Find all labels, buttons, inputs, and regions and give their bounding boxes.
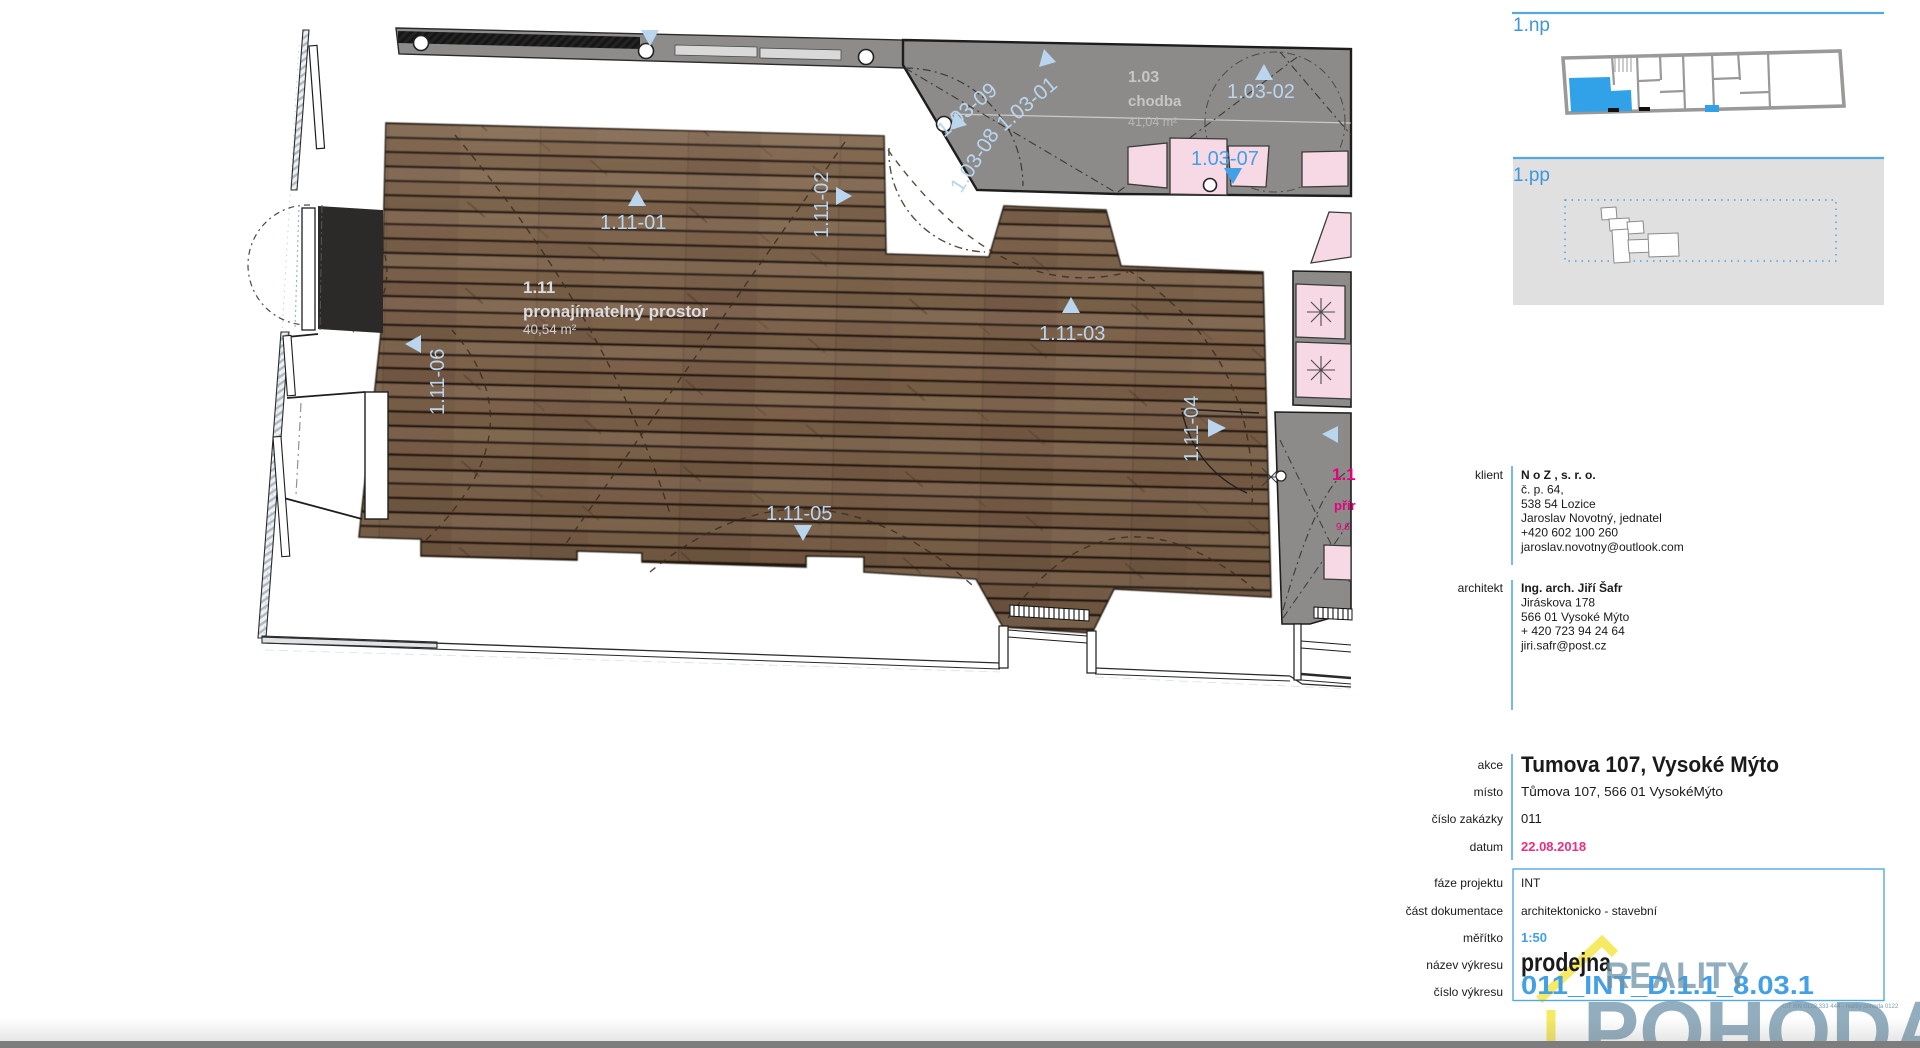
svg-text:566 01 Vysoké Mýto: 566 01 Vysoké Mýto [1521, 610, 1630, 624]
svg-text:22.08.2018: 22.08.2018 [1521, 839, 1586, 854]
svg-text:chodba: chodba [1128, 93, 1182, 110]
svg-text:1.11-04: 1.11-04 [1181, 396, 1203, 462]
svg-text:1.11-05: 1.11-05 [766, 503, 832, 525]
svg-text:CIT RN 0122 333 444 - reality: CIT RN 0122 333 444 - reality pohoda 012… [1782, 1004, 1899, 1010]
svg-text:538 54 Lozice: 538 54 Lozice [1521, 497, 1596, 511]
svg-text:jiri.safr@post.cz: jiri.safr@post.cz [1520, 639, 1607, 653]
svg-text:číslo zakázky: číslo zakázky [1432, 812, 1503, 826]
svg-text:fáze projektu: fáze projektu [1434, 876, 1503, 890]
svg-text:1.1: 1.1 [1332, 465, 1356, 484]
svg-text:41,04 m²: 41,04 m² [1128, 115, 1177, 129]
svg-text:akce: akce [1478, 758, 1504, 772]
svg-text:40,54 m²: 40,54 m² [523, 322, 577, 337]
svg-text:název výkresu: název výkresu [1426, 958, 1503, 972]
svg-text:1.11-03: 1.11-03 [1039, 323, 1105, 345]
svg-text:datum: datum [1470, 840, 1503, 854]
svg-text:část dokumentace: část dokumentace [1406, 904, 1504, 918]
svg-text:N o Z , s. r. o.: N o Z , s. r. o. [1521, 468, 1596, 482]
svg-text:přír: přír [1334, 498, 1356, 513]
svg-text:1.np: 1.np [1513, 15, 1550, 36]
svg-text:architekt: architekt [1458, 581, 1504, 595]
svg-text:pronajímatelný prostor: pronajímatelný prostor [523, 302, 709, 321]
svg-text:číslo výkresu: číslo výkresu [1434, 985, 1503, 999]
svg-text:místo: místo [1474, 785, 1504, 799]
svg-text:1:50: 1:50 [1521, 930, 1547, 945]
svg-text:architektonicko - stavební: architektonicko - stavební [1521, 904, 1658, 918]
svg-text:Ing. arch. Jiří Šafr: Ing. arch. Jiří Šafr [1521, 580, 1623, 595]
svg-text:1.03-02: 1.03-02 [1227, 81, 1295, 103]
svg-text:+ 420 723 94 24 64: + 420 723 94 24 64 [1521, 624, 1625, 638]
svg-text:měřítko: měřítko [1463, 931, 1503, 945]
svg-text:jaroslav.novotny@outlook.com: jaroslav.novotny@outlook.com [1520, 540, 1684, 554]
svg-text:1.11-02: 1.11-02 [811, 172, 833, 238]
svg-text:011: 011 [1521, 811, 1542, 826]
svg-text:1.03: 1.03 [1128, 69, 1159, 86]
svg-text:1.11-06: 1.11-06 [427, 349, 449, 415]
svg-text:9,6: 9,6 [1336, 522, 1350, 533]
svg-text:č. p. 64,: č. p. 64, [1521, 482, 1564, 496]
svg-text:1.11-01: 1.11-01 [600, 212, 666, 234]
svg-text:Jiráskova 178: Jiráskova 178 [1521, 595, 1595, 609]
svg-text:1.11: 1.11 [523, 278, 555, 297]
svg-text:Tůmova 107, 566 01 VysokéMýto: Tůmova 107, 566 01 VysokéMýto [1521, 784, 1723, 799]
svg-text:1.03-07: 1.03-07 [1191, 148, 1259, 170]
svg-text:Tumova 107, Vysoké Mýto: Tumova 107, Vysoké Mýto [1521, 752, 1779, 777]
svg-text:Jaroslav Novotný, jednatel: Jaroslav Novotný, jednatel [1521, 511, 1662, 525]
svg-text:klient: klient [1475, 468, 1504, 482]
svg-text:+420 602 100 260: +420 602 100 260 [1521, 526, 1618, 540]
svg-text:INT: INT [1521, 876, 1541, 890]
svg-text:1.pp: 1.pp [1513, 165, 1550, 186]
